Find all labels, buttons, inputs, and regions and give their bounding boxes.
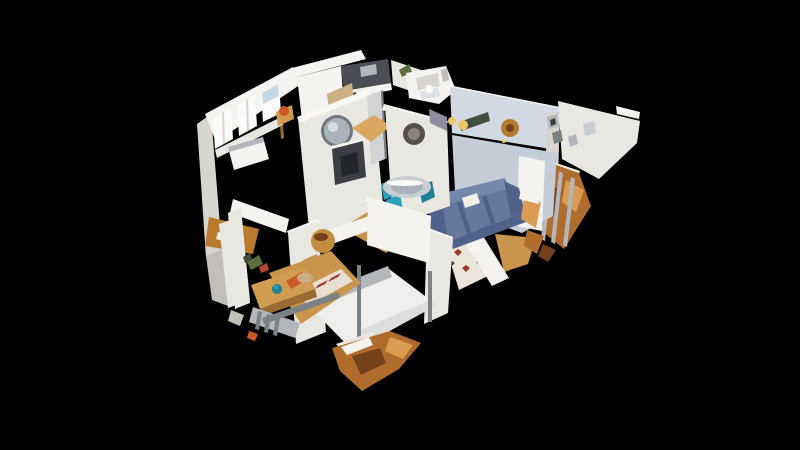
dollhouse-3d-viewport[interactable] (0, 0, 800, 450)
small-gold-dot (502, 139, 506, 143)
table-highlight (387, 180, 423, 186)
round-side-table (311, 229, 335, 253)
hat-on-table (314, 233, 328, 241)
teal-vase-highlight (274, 285, 278, 289)
viewer-stage (0, 0, 800, 450)
mirror-highlight (328, 122, 338, 132)
bed-post-1 (357, 265, 361, 340)
toilet (425, 85, 433, 93)
wall-sconce-glow (448, 117, 456, 125)
bed-post-2 (428, 271, 432, 322)
wall-medallion-center (408, 128, 420, 140)
straw-hat (297, 273, 313, 283)
orange-cushion (279, 106, 289, 116)
round-mirror (324, 118, 350, 144)
lamp-glow (458, 120, 468, 130)
gold-ornament-center (506, 124, 514, 132)
